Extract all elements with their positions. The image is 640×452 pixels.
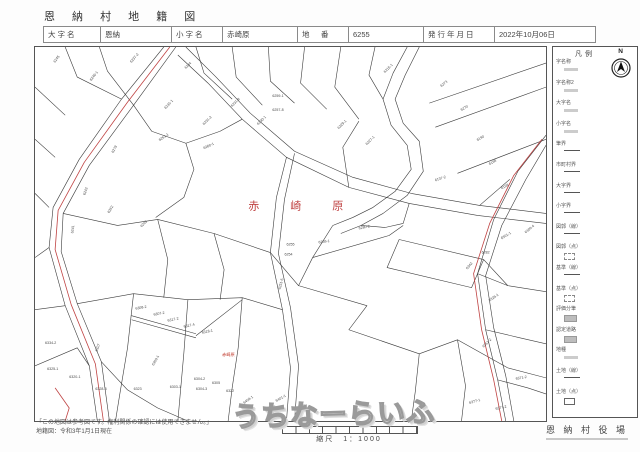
parcel-number-label: 6322 — [226, 389, 234, 393]
legend-item: 筆界 — [556, 141, 635, 162]
legend-item-sample-dashbox — [564, 253, 575, 260]
parcel-number-label: 6342 — [465, 262, 473, 271]
parcel-number-label: 6262 — [107, 205, 114, 214]
parcel-number-label: 6334-2 — [45, 341, 56, 345]
issue-date-value: 2022年10月06日 — [495, 27, 596, 43]
parcel-boundary-line — [301, 47, 327, 109]
legend-item: 地種 — [556, 347, 635, 368]
legend-item: 大字名 — [556, 100, 635, 121]
legend-item-sample-text — [564, 89, 578, 92]
legend-item-sample-graybox — [564, 336, 577, 343]
legend-item-label: 大字名 — [556, 100, 635, 107]
parcel-number-label: 6309-1 — [151, 355, 160, 367]
legend-item: 市町村界 — [556, 162, 635, 183]
parcel-number-label: 6199 — [500, 183, 509, 190]
legend-item-sample-graybox — [564, 315, 577, 322]
parcel-number-label: 6320-1 — [69, 375, 80, 379]
parcel-boundary-line — [196, 47, 232, 99]
legend-item-sample-text — [564, 356, 578, 359]
legend-item: 評価分筆 — [556, 306, 635, 327]
legend-item: 基準（線） — [556, 265, 635, 286]
legend-item-label: 基準（線） — [556, 265, 635, 272]
parcel-boundary-line — [335, 47, 359, 119]
parcel-number-label: 6244 — [184, 61, 193, 69]
watermark: うちなーらいふ — [232, 390, 436, 435]
legend-item-sample-line — [564, 150, 580, 151]
area-name-label: 赤 崎 原 — [248, 198, 357, 212]
legend-item-sample-line — [564, 233, 580, 234]
legend-item-label: 字名称2 — [556, 80, 635, 87]
parcel-boundary-line — [178, 300, 188, 421]
footer-notes: 「この地図は参考図です。権利関係の確認には使用できません。」 地籍図：令和3年1… — [36, 419, 212, 437]
legend-item: 図郭（点） — [556, 244, 635, 265]
parcel-number-label: 6327 — [95, 343, 102, 352]
legend-item-label: 評価分筆 — [556, 306, 635, 313]
legend-item-sample-line — [564, 377, 580, 378]
legend-item-label: 基準（点） — [556, 286, 635, 293]
disclaimer-note: 「この地図は参考図です。権利関係の確認には使用できません。」 — [36, 419, 212, 428]
village-office-label: 恩 納 村 役 場 — [546, 423, 628, 440]
oaza-label: 大字名 — [44, 27, 101, 43]
parcel-boundary-line — [134, 105, 243, 143]
parcel-boundary-line — [498, 380, 546, 394]
parcel-boundary-line — [35, 139, 55, 157]
parcel-number-label: 6304-2 — [194, 377, 205, 381]
cadastral-map[interactable]: 62456246-16237-262446231-16231-26231-862… — [34, 46, 547, 422]
scale-label: 縮尺 1：1000 — [282, 434, 416, 444]
currency-note: 地籍図：令和3年1月1日現在 — [36, 428, 212, 437]
parcel-number-label: 6254 — [284, 253, 292, 257]
legend-item-label: 土地（線） — [556, 368, 635, 375]
chiban-label: 地 番 — [298, 27, 349, 43]
parcel-number-label: 6259-1 — [272, 94, 283, 98]
parcel-number-label: 6190 — [476, 134, 485, 142]
parcel-boundary-line — [35, 87, 65, 115]
area-name-small-label: 赤崎原 — [222, 351, 235, 357]
legend-item-sample-line — [564, 212, 580, 213]
legend-title: 凡例 — [575, 49, 595, 59]
cadastral-map-page: { "header": { "title": "恩 納 村 地 籍 図", "o… — [0, 0, 640, 452]
road-boundary-red-line — [474, 139, 542, 421]
parcel-boundary-line — [435, 87, 546, 127]
parcel-number-label: 6377-2 — [495, 405, 507, 411]
parcel-boundary-line — [299, 286, 508, 368]
parcel-number-label: 6237-2 — [129, 53, 139, 64]
legend-items: 字名称字名称2大字名小字名筆界市町村界大字界小字界図郭（線）図郭（点）基準（線）… — [556, 59, 635, 409]
legend-item: 字名称 — [556, 59, 635, 80]
parcel-number-label: 6323 — [134, 387, 142, 391]
parcel-number-label: 6304-3 — [196, 387, 207, 391]
parcel-number-label: 6305 — [212, 381, 220, 385]
legend-item-label: 土地（点） — [556, 389, 635, 396]
parcel-boundary-line — [299, 225, 333, 285]
legend-item-label: 図郭（線） — [556, 224, 635, 231]
parcel-number-label: 6270 — [460, 104, 469, 112]
legend-item: 図郭（線） — [556, 224, 635, 245]
parcel-boundary-line — [35, 306, 65, 310]
north-label: N — [618, 48, 623, 55]
parcel-number-label: 6215-1 — [383, 63, 394, 74]
parcel-number-label: 6227-1 — [365, 135, 376, 146]
parcel-number-label: 6137-2 — [434, 175, 446, 182]
parcel-boundary-line — [49, 47, 164, 421]
parcel-number-label: 6303-1 — [170, 385, 181, 389]
parcel-boundary-line — [77, 294, 282, 310]
legend-item: 土地（点） — [556, 389, 635, 410]
legend-item-sample-text — [564, 130, 578, 133]
chiban-value: 6255 — [349, 27, 424, 43]
parcel-number-label: 6301-1 — [500, 231, 512, 240]
parcel-number-label: 6309-4 — [524, 224, 535, 234]
parcel-number-label: 6241 — [70, 225, 75, 233]
parcel-boundary-line — [486, 330, 546, 344]
parcel-number-label: 6231-2 — [202, 115, 213, 126]
legend-item-label: 筆界 — [556, 141, 635, 148]
parcel-number-label: 6258-1 — [318, 239, 330, 245]
parcel-boundary-line — [35, 248, 49, 258]
parcel-number-label: 6326-1 — [488, 293, 500, 303]
parcel-number-label: 6260-1 — [203, 142, 215, 150]
parcel-boundary-line — [478, 135, 546, 421]
parcel-number-label: 6231-1 — [164, 99, 175, 110]
legend-item-sample-dashbox — [564, 295, 575, 302]
parcel-number-label: 6246-1 — [89, 70, 99, 81]
parcel-number-label: 6278 — [111, 145, 118, 154]
legend-item-label: 認定道路 — [556, 327, 635, 334]
parcel-boundary-line — [457, 340, 465, 421]
parcel-boundary-line — [484, 260, 508, 286]
legend-item-sample-line — [564, 192, 580, 193]
legend-item-label: 小字名 — [556, 121, 635, 128]
legend-item-sample-box — [564, 398, 575, 405]
parcel-number-label: 6308-2 — [135, 305, 147, 311]
koaza-value: 赤崎原 — [223, 27, 298, 43]
issue-date-label: 発行年月日 — [424, 27, 495, 43]
parcel-number-label: 6229-1 — [337, 119, 348, 130]
parcel-boundary-line — [101, 362, 188, 421]
header-table: 大字名 恩納 小字名 赤崎原 地 番 6255 発行年月日 2022年10月06… — [43, 26, 596, 43]
legend-item: 基準（点） — [556, 286, 635, 307]
parcel-boundary-line — [35, 193, 49, 207]
parcel-boundary-line — [35, 348, 89, 366]
parcel-boundary-line — [115, 294, 133, 421]
parcel-number-label: 6377-1 — [469, 398, 481, 405]
legend-item-sample-text — [564, 68, 578, 71]
page-title: 恩 納 村 地 籍 図 — [44, 8, 202, 24]
legend-item: 認定道路 — [556, 327, 635, 348]
legend-panel: 凡例 N 字名称字名称2大字名小字名筆界市町村界大字界小字界図郭（線）図郭（点）… — [552, 46, 638, 418]
parcel-number-label: 6198 — [488, 159, 497, 166]
parcel-number-label: 6251-5 — [278, 278, 285, 290]
parcel-number-label: 6318-1 — [201, 329, 213, 335]
parcel-boundary-line — [156, 143, 194, 217]
parcel-boundary-line — [232, 47, 262, 105]
parcel-number-label: 6371-2 — [515, 375, 527, 381]
parcel-number-label: 6317-2 — [167, 316, 179, 322]
legend-item: 大字界 — [556, 183, 635, 204]
koaza-label: 小字名 — [172, 27, 223, 43]
road-boundary-red-line — [55, 388, 69, 421]
legend-item-label: 市町村界 — [556, 162, 635, 169]
legend-item-label: 大字界 — [556, 183, 635, 190]
legend-item: 字名称2 — [556, 80, 635, 101]
parcel-number-label: 6307-2 — [153, 311, 165, 317]
parcel-boundary-line — [186, 47, 546, 213]
parcel-number-label: 6280-2 — [358, 224, 370, 230]
oaza-value: 恩納 — [101, 27, 172, 43]
legend-item-label: 図郭（点） — [556, 244, 635, 251]
legend-item-sample-text — [564, 109, 578, 112]
legend-item-sample-line — [564, 171, 580, 172]
legend-item-label: 小字界 — [556, 203, 635, 210]
parcel-boundary-line — [63, 213, 270, 252]
map-svg: 62456246-16237-262446231-16231-26231-862… — [35, 47, 546, 421]
legend-item-label: 字名称 — [556, 59, 635, 66]
legend-item: 小字名 — [556, 121, 635, 142]
parcel-number-label: 6230-1 — [256, 115, 267, 126]
parcel-number-label: 6242 — [82, 187, 88, 196]
parcel-number-label: 6282 — [482, 251, 490, 255]
legend-item: 土地（線） — [556, 368, 635, 389]
parcel-boundary-line — [158, 219, 168, 297]
parcel-number-label: 6328-3 — [95, 387, 106, 391]
parcel-boundary-line — [369, 47, 383, 99]
legend-item-sample-line — [564, 274, 580, 275]
legend-item: 小字界 — [556, 203, 635, 224]
parcel-boundary-line — [343, 121, 359, 187]
parcel-number-label: 6317-4 — [183, 322, 195, 328]
parcel-number-label: 6325-1 — [47, 367, 58, 371]
parcel-boundary-line — [214, 233, 224, 299]
parcel-boundary-line — [508, 368, 546, 378]
parcel-number-label: 6273 — [440, 80, 449, 88]
parcel-boundary-line — [178, 55, 546, 223]
parcel-number-label: 6351-2 — [482, 338, 493, 349]
parcel-number-label: 6245 — [53, 55, 61, 64]
parcel-number-label: 6257-8 — [272, 108, 283, 112]
parcel-number-label: 6255 — [286, 243, 294, 247]
legend-item-label: 地種 — [556, 347, 635, 354]
